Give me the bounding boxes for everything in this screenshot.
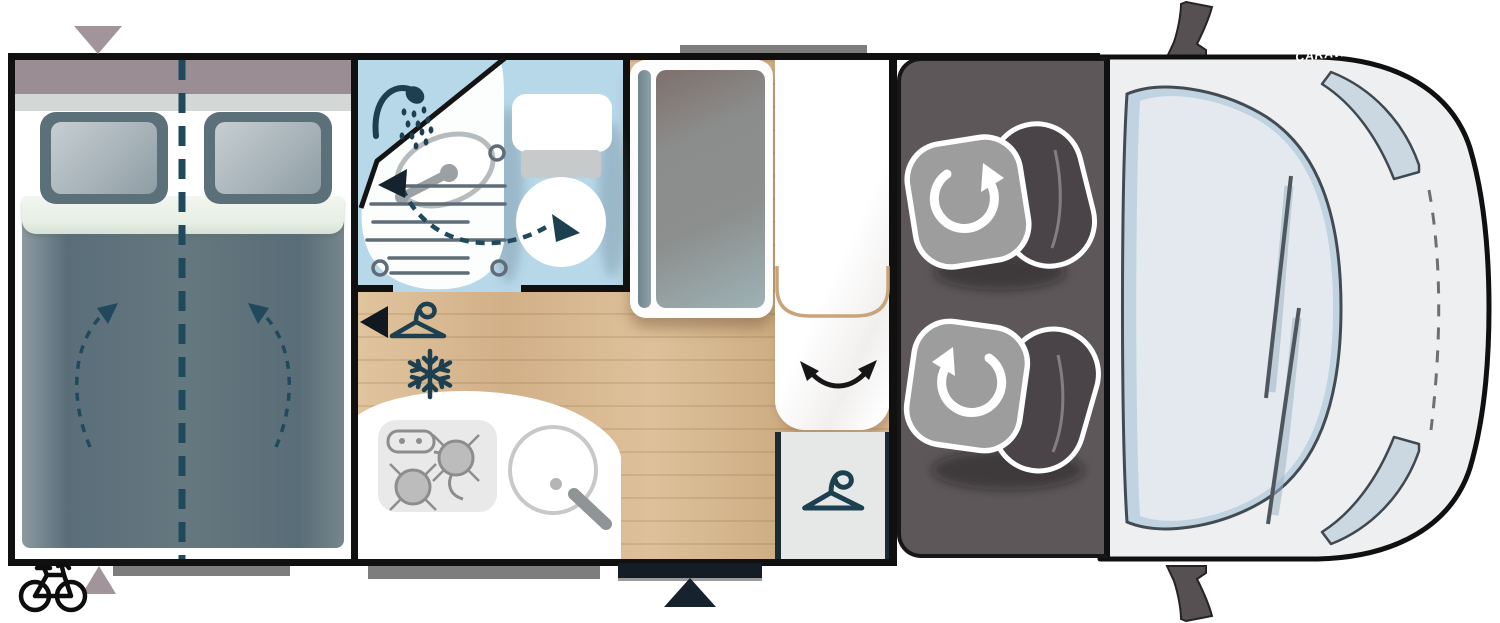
washbasin-faucet-pivot <box>440 164 458 182</box>
bed-lift-arrowhead-left <box>97 303 118 324</box>
burner-left <box>390 464 436 510</box>
snowflake-icon <box>410 351 450 397</box>
bed-lift-arrowhead-right <box>248 303 269 324</box>
stowed-table-outline <box>777 266 888 316</box>
wardrobe-hanger-icon <box>805 473 862 508</box>
bed-lift-arc-left <box>77 317 100 447</box>
window-marker-top-triangle <box>74 26 122 54</box>
seat-cushion <box>902 132 1034 272</box>
passenger-swivel-seat <box>902 317 1109 490</box>
bicycle-icon <box>21 564 85 610</box>
camper-floorplan: CARAVANS.IE <box>0 0 1500 623</box>
hob-two-burner <box>378 420 497 512</box>
seat-cushion <box>902 317 1032 456</box>
hanger-icon <box>392 304 444 336</box>
driver-swivel-seat <box>902 114 1104 290</box>
sink-drain <box>550 478 562 490</box>
bed-lift-arc-right <box>266 317 289 447</box>
burner-right <box>433 435 479 481</box>
window-marker-bottom-triangle <box>82 566 116 594</box>
entry-door-triangle <box>664 578 716 607</box>
toilet-seat-hinge <box>521 150 601 178</box>
coat-hook-wall-arrowhead <box>360 306 388 338</box>
toilet-tank <box>512 94 612 152</box>
floorplan-details <box>0 0 1500 623</box>
